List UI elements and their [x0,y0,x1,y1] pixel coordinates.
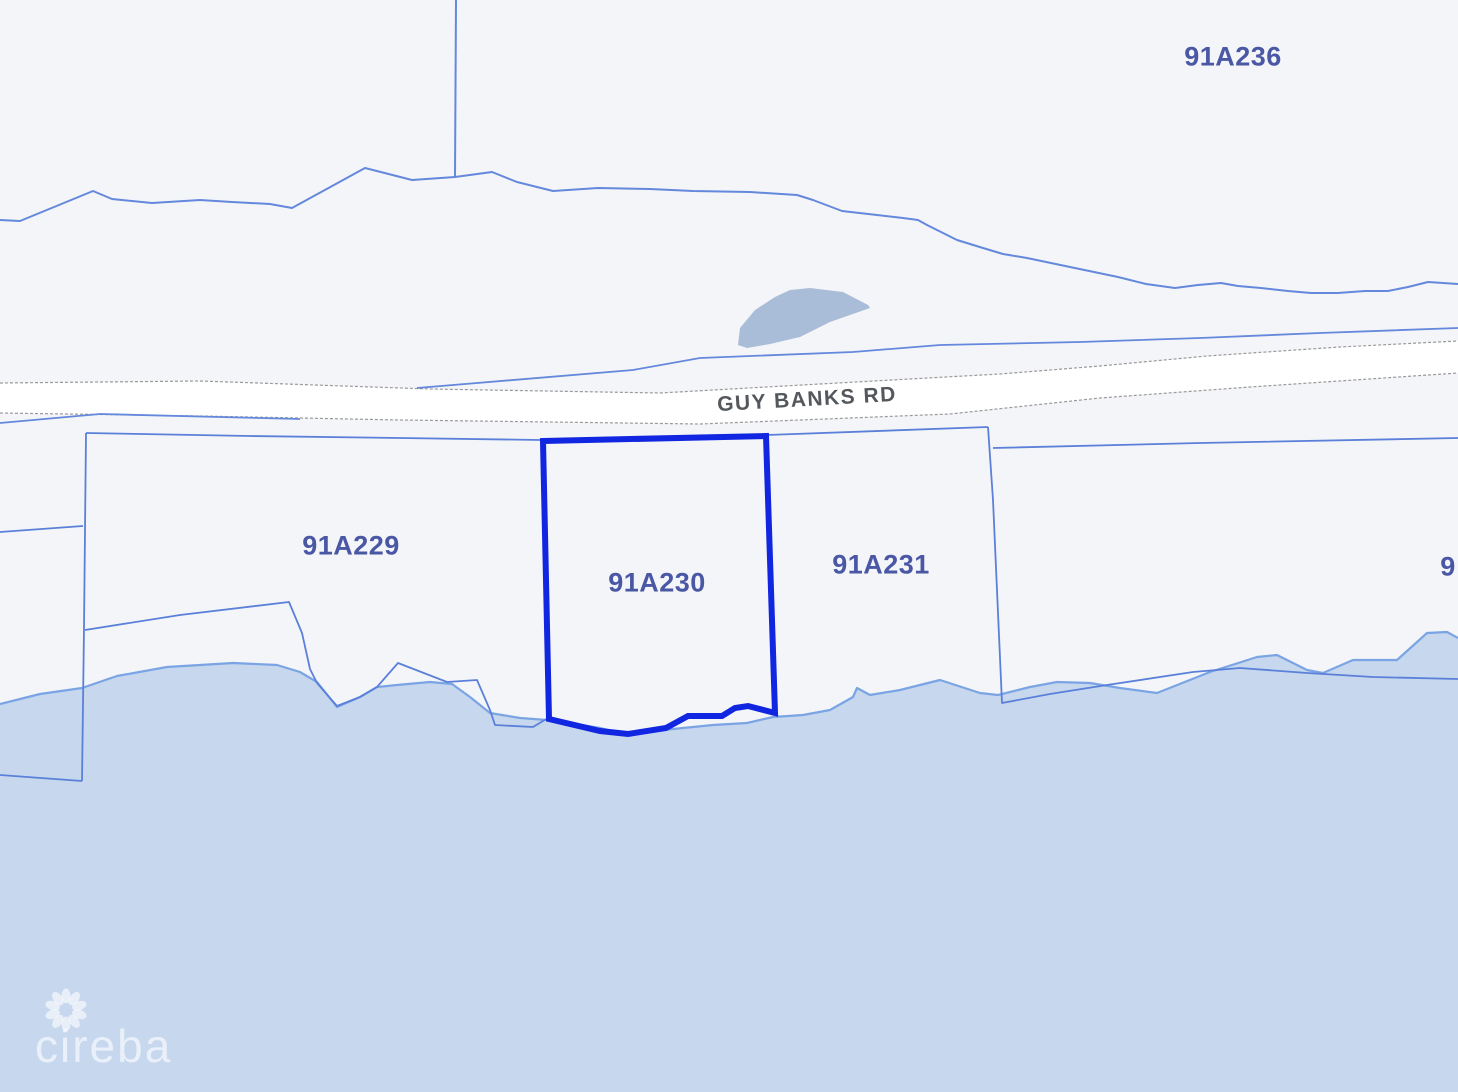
parcel-label-partial: 9 [1440,552,1456,583]
north-boundary-line [455,0,456,177]
map-canvas [0,0,1458,1092]
cadastral-map[interactable]: 91A236 91A229 91A230 91A231 9 GUY BANKS … [0,0,1458,1092]
parcel-label-91A231: 91A231 [832,550,930,581]
parcel-label-91A229: 91A229 [302,531,400,562]
cireba-logo: cireba [35,1019,172,1073]
parcel-label-91A236: 91A236 [1184,42,1282,73]
parcel-label-91A230: 91A230 [608,568,706,599]
